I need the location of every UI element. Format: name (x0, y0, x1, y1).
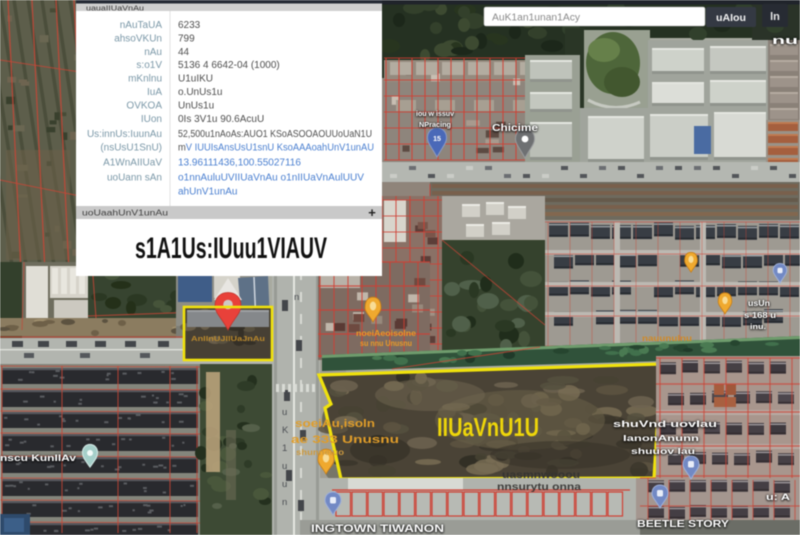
svg-text:K: K (282, 425, 289, 436)
svg-text:BEETLE STORY: BEETLE STORY (637, 518, 729, 530)
svg-text:mKnlnu: mKnlnu (128, 74, 162, 85)
svg-text:shuVnd uovIau: shuVnd uovIau (613, 419, 717, 429)
svg-text:uauaIIUaVnAu: uauaIIUaVnAu (86, 6, 144, 13)
svg-text:5136 4 6642-04 (1000): 5136 4 6642-04 (1000) (178, 60, 280, 71)
svg-text:n: n (294, 292, 299, 303)
svg-text:nu: nu (772, 35, 798, 47)
svg-text:shunneiuo: shunneiuo (296, 448, 344, 457)
svg-text:52,500u1nAoAs:AUO1 KSoASOOAOUU: 52,500u1nAoAs:AUO1 KSoASOOAOUUoUaN1U (178, 129, 372, 140)
svg-text:NPracing: NPracing (419, 120, 451, 129)
svg-text:uoUann sAn: uoUann sAn (107, 173, 162, 184)
svg-text:U1uIKU: U1uIKU (178, 74, 213, 85)
svg-text:44: 44 (178, 47, 190, 58)
svg-text:s:o1V: s:o1V (136, 60, 162, 71)
svg-text:IuA: IuA (147, 87, 162, 98)
svg-text:INGTOWN TIWANON: INGTOWN TIWANON (311, 523, 444, 535)
svg-text:ln: ln (770, 11, 780, 23)
svg-text:nAu: nAu (144, 47, 162, 58)
svg-text:usUn: usUn (748, 298, 770, 308)
svg-text:noeiAeoisolne: noeiAeoisolne (356, 329, 417, 338)
svg-text:s 168 u: s 168 u (744, 310, 776, 320)
svg-text:ahUnV1unAu: ahUnV1unAu (178, 186, 238, 197)
svg-text:soeiAu,isoln: soeiAu,isoln (295, 418, 375, 430)
svg-text:AnIInUJIIUaJnAu: AnIInUJIIUaJnAu (191, 334, 266, 343)
svg-text:AuK1an1unan1Acy: AuK1an1unan1Acy (492, 13, 580, 24)
svg-text:OVKOA: OVKOA (126, 100, 162, 111)
svg-text:799: 799 (178, 33, 195, 44)
svg-text:uasmnwooou: uasmnwooou (502, 470, 580, 481)
svg-text:6233: 6233 (178, 20, 201, 31)
svg-text:uoUaahUnV1unAu: uoUaahUnV1unAu (82, 209, 168, 218)
svg-text:IanonAnunn: IanonAnunn (623, 433, 699, 443)
svg-text:inu.: inu. (750, 324, 766, 331)
svg-text:Chicime: Chicime (492, 123, 539, 134)
svg-text:nscu KunIIAv: nscu KunIIAv (0, 453, 77, 464)
svg-text:nAuTaUA: nAuTaUA (120, 20, 163, 31)
svg-text:1: 1 (282, 443, 287, 454)
svg-text:IUon: IUon (141, 114, 162, 125)
svg-text:Us:innUs:IuunAu: Us:innUs:IuunAu (87, 129, 162, 140)
svg-text:u: u (282, 407, 287, 418)
svg-text:o.UnUs1u: o.UnUs1u (178, 87, 222, 98)
svg-text:iou w issuv: iou w issuv (416, 111, 454, 118)
svg-text:o1nnAuluUVIIUaVnAu o1nIIUaVnAu: o1nnAuluUVIIUaVnAu o1nIIUaVnAulUUV (178, 173, 364, 184)
svg-text:13.96111436,100.55027116: 13.96111436,100.55027116 (178, 158, 301, 169)
svg-text:0Is 3V1u 90.6AcuU: 0Is 3V1u 90.6AcuU (178, 114, 264, 125)
svg-text:IIUaVnU1U: IIUaVnU1U (437, 412, 539, 442)
svg-text:15: 15 (433, 136, 441, 143)
svg-text:u: u (282, 461, 287, 472)
svg-text:mV IUUIsAnsUsU1snU KsoAAAoahUn: mV IUUIsAnsUsU1snU KsoAAAoahUnV1unAU (178, 142, 374, 153)
svg-text:n: n (282, 497, 287, 508)
svg-text:+: + (368, 205, 376, 220)
svg-text:ae 333 Unusnu: ae 333 Unusnu (291, 434, 399, 446)
svg-text:UnUs1u: UnUs1u (178, 100, 214, 111)
svg-text:u: A: u: A (766, 492, 791, 502)
svg-text:A1WnAIIUaV: A1WnAIIUaV (103, 158, 162, 169)
svg-text:su nnu Unusnu: su nnu Unusnu (360, 339, 412, 348)
svg-text:(nsUsU1SnU): (nsUsU1SnU) (100, 142, 162, 153)
svg-text:s1A1Us:IUuu1VIAUV: s1A1Us:IUuu1VIAUV (135, 232, 327, 265)
svg-text:nauunulnu: nauunulnu (642, 333, 692, 343)
svg-text:u: u (282, 479, 287, 490)
svg-text:nnsurytu onna: nnsurytu onna (497, 482, 582, 493)
svg-text:uAIou: uAIou (716, 13, 746, 24)
svg-text:shuuov Iau: shuuov Iau (631, 446, 695, 456)
svg-text:ahsoVKUn: ahsoVKUn (114, 33, 162, 44)
